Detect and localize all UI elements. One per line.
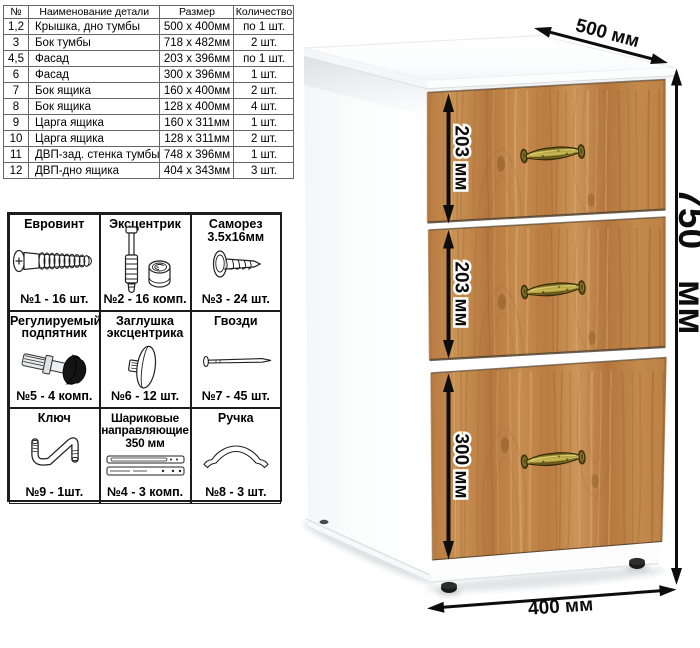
svg-text:300 мм: 300 мм <box>450 433 471 498</box>
svg-text:203 мм: 203 мм <box>450 261 471 326</box>
svg-text:400 мм: 400 мм <box>527 594 593 619</box>
svg-text:750 мм: 750 мм <box>671 187 700 334</box>
svg-text:203 мм: 203 мм <box>450 125 471 190</box>
